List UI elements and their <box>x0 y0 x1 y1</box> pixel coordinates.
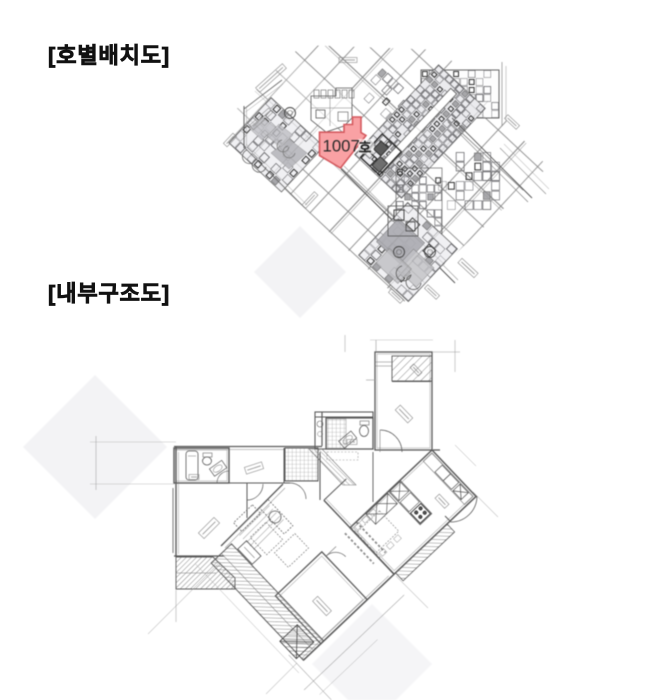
svg-text:1007: 1007 <box>323 137 360 156</box>
svg-text:호: 호 <box>359 140 372 156</box>
